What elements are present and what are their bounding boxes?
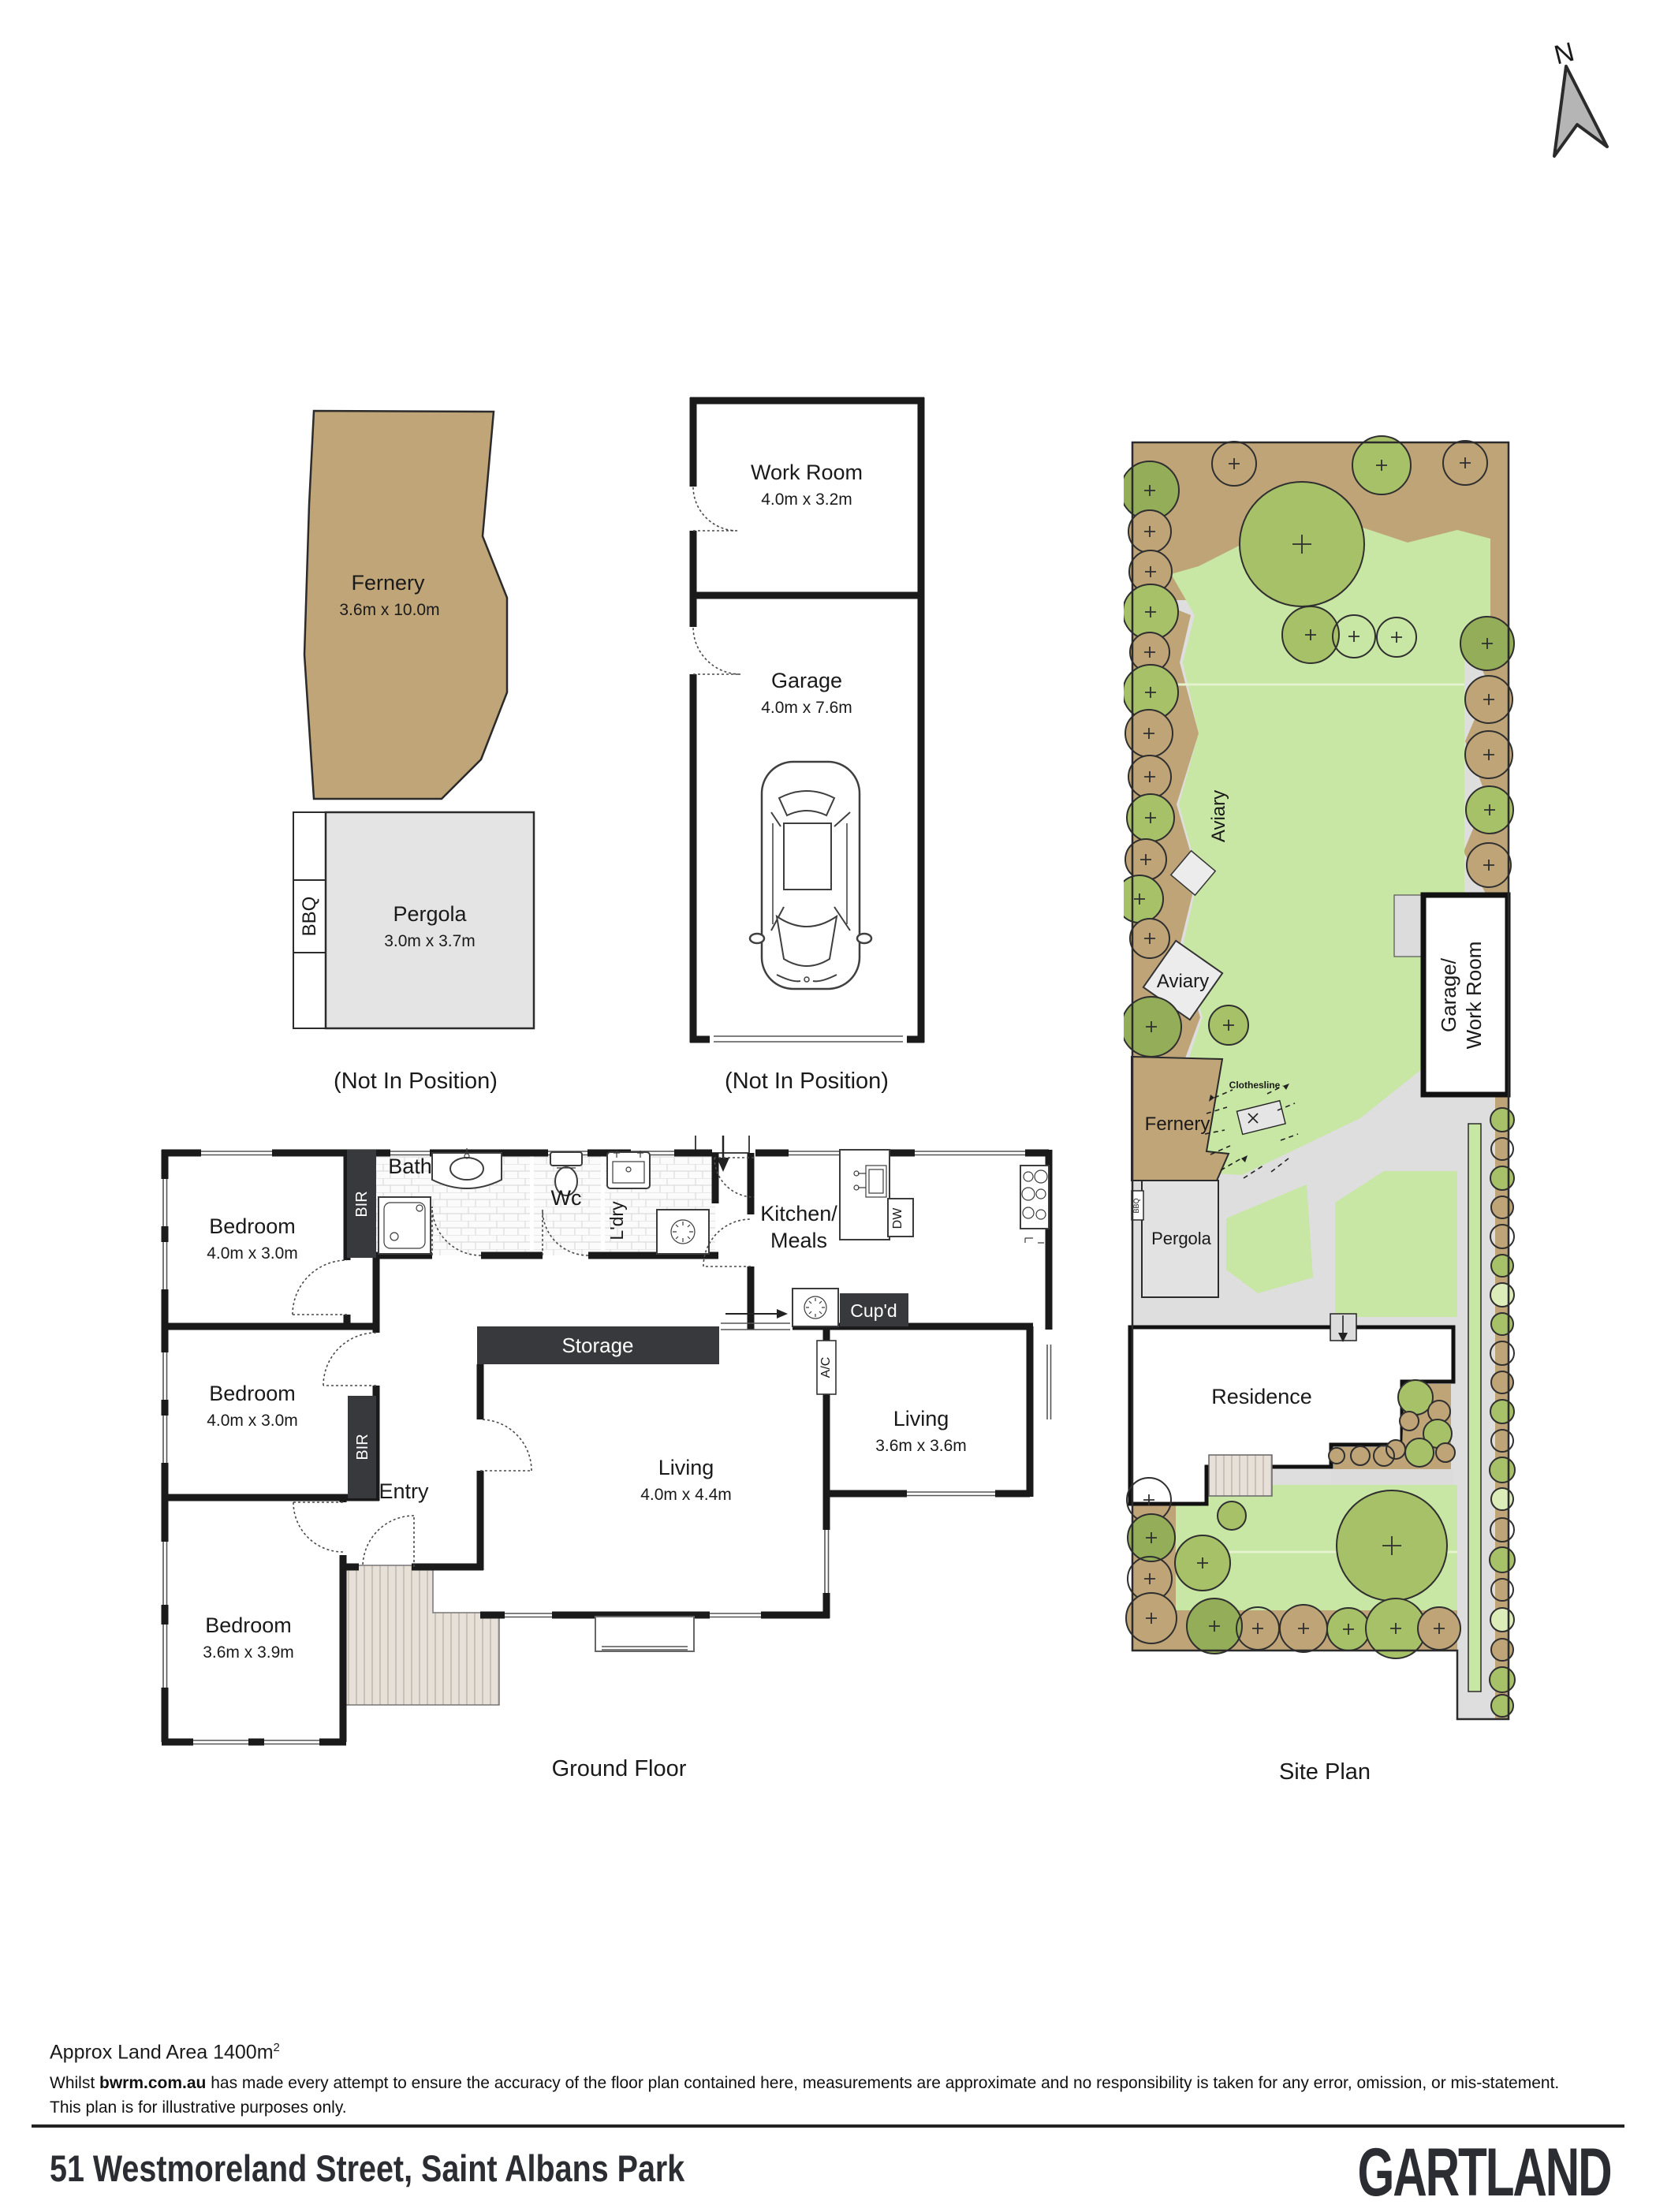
roller-door xyxy=(710,1034,907,1044)
site-plan-caption: Site Plan xyxy=(1279,1759,1371,1785)
aviary-label: Aviary xyxy=(1157,971,1209,992)
bedroom3-dims: 3.6m x 3.9m xyxy=(203,1643,294,1662)
land-area-sup: 2 xyxy=(274,2041,280,2054)
fernery-pergola-plan: Fernery 3.6m x 10.0m BBQ Pergola 3.0m x … xyxy=(288,402,556,1104)
garage-workroom-plan: Work Room 4.0m x 3.2m Garage 4.0m x 7.6m… xyxy=(678,390,938,1100)
passage-arrow xyxy=(721,1309,790,1330)
bedroom3-label: Bedroom xyxy=(205,1613,292,1637)
storage-label: Storage xyxy=(561,1334,633,1357)
site-fernery-label: Fernery xyxy=(1145,1113,1210,1135)
kitchen-fixtures: DW xyxy=(793,1150,1049,1326)
car-illustration xyxy=(750,762,871,989)
disclaimer-line2: This plan is for illustrative purposes o… xyxy=(50,2098,347,2117)
clothesline-label: Clothesline xyxy=(1229,1080,1281,1091)
land-area: Approx Land Area 1400m2 xyxy=(50,2041,280,2064)
residence-label: Residence xyxy=(1211,1385,1312,1408)
bir1-label: BIR xyxy=(353,1191,371,1217)
disclaimer-line1: Whilst bwrm.com.au has made every attemp… xyxy=(50,2074,1559,2093)
property-address: 51 Westmoreland Street, Saint Albans Par… xyxy=(50,2147,684,2190)
north-arrow: N xyxy=(1518,20,1628,185)
kitchen-label-1: Kitchen/ xyxy=(760,1202,837,1225)
disclaimer-domain: bwrm.com.au xyxy=(99,2074,206,2092)
bath-label: Bath xyxy=(388,1154,432,1178)
aviary-side-label: Aviary xyxy=(1208,790,1229,842)
bir2-label: BIR xyxy=(354,1434,371,1460)
living1-dims: 4.0m x 4.4m xyxy=(640,1486,732,1504)
site-bbq-label: BBQ xyxy=(1132,1198,1140,1213)
bedroom2-label: Bedroom xyxy=(209,1382,296,1405)
lawn-wedge-right xyxy=(1335,1171,1457,1317)
garage-apron xyxy=(1394,895,1423,957)
living2-dims: 3.6m x 3.6m xyxy=(875,1437,967,1455)
bbq-label: BBQ xyxy=(299,897,320,937)
kitchen-label-2: Meals xyxy=(770,1229,827,1252)
bedroom1-dims: 4.0m x 3.0m xyxy=(207,1244,298,1263)
site-pergola-label: Pergola xyxy=(1151,1229,1212,1248)
driveway-strip xyxy=(1468,1124,1481,1692)
living1-label: Living xyxy=(658,1456,714,1479)
pergola-dims: 3.0m x 3.7m xyxy=(384,932,476,950)
cupd-label: Cup'd xyxy=(850,1300,897,1321)
ldry-label: L'dry xyxy=(606,1201,627,1240)
bedroom1-label: Bedroom xyxy=(209,1214,296,1238)
bbq-strip: BBQ xyxy=(293,812,326,1028)
entry-label: Entry xyxy=(379,1479,429,1503)
garage-dims: 4.0m x 7.6m xyxy=(761,699,852,717)
wc-label: Wc xyxy=(551,1186,582,1210)
north-label: N xyxy=(1551,37,1577,71)
residence-steps xyxy=(1209,1455,1272,1496)
not-in-position-caption-2: (Not In Position) xyxy=(725,1069,889,1094)
footer-rule xyxy=(32,2124,1624,2128)
workroom-dims: 4.0m x 3.2m xyxy=(761,491,852,509)
bay-window xyxy=(595,1617,694,1651)
ground-floor-caption: Ground Floor xyxy=(552,1756,687,1781)
ac-label: A/C xyxy=(819,1357,833,1378)
workroom-label: Work Room xyxy=(751,461,863,484)
ground-floor-plan: BIR BIR Storage Cup'd xyxy=(150,1136,1088,1790)
deck xyxy=(345,1565,499,1705)
bedroom2-dims: 4.0m x 3.0m xyxy=(207,1412,298,1430)
north-arrow-icon xyxy=(1554,66,1607,156)
fernery-label: Fernery xyxy=(351,571,425,595)
floorplan-page: N Fernery 3.6m x 10.0m BBQ Pergola 3.0m … xyxy=(0,0,1656,2212)
not-in-position-caption-1: (Not In Position) xyxy=(334,1069,498,1094)
dw-label: DW xyxy=(891,1207,904,1229)
fernery-dims: 3.6m x 10.0m xyxy=(339,601,439,619)
garage-label: Garage xyxy=(771,669,842,692)
path-below-residence xyxy=(1331,1469,1453,1485)
pergola-label: Pergola xyxy=(393,902,467,926)
living2-label: Living xyxy=(893,1407,949,1431)
site-plan: Fernery Pergola BBQ Aviary Aviary Clothe… xyxy=(1124,434,1526,1790)
gartland-logo: GARTLAND xyxy=(1357,2134,1610,2212)
